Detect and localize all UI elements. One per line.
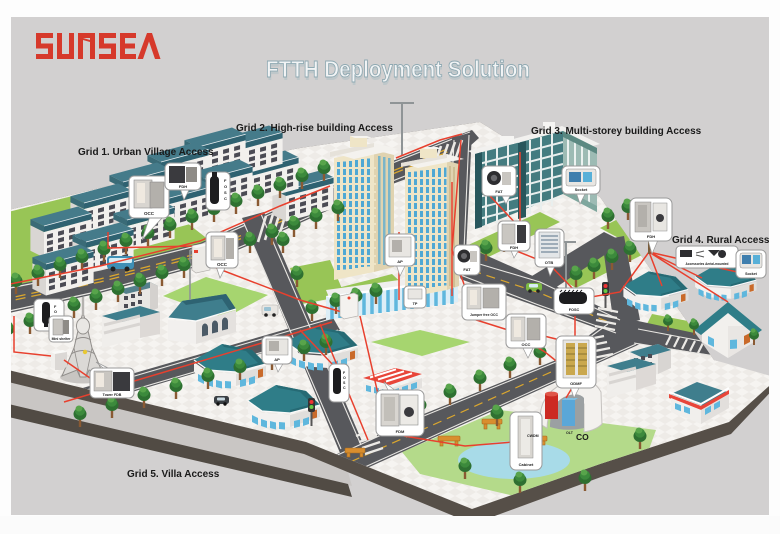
svg-text:Socket: Socket: [575, 188, 588, 192]
svg-text:FOSC: FOSC: [569, 308, 580, 312]
svg-text:FAT: FAT: [495, 189, 503, 194]
svg-text:FTTH Deployment Solution: FTTH Deployment Solution: [266, 56, 530, 82]
svg-text:OTB: OTB: [545, 260, 554, 265]
svg-text:Grid 4. Rural Access: Grid 4. Rural Access: [672, 235, 770, 246]
svg-text:FAT: FAT: [463, 267, 471, 272]
svg-text:Grid 3. Multi-storey building: Grid 3. Multi-storey building Access: [531, 126, 702, 137]
svg-text:Accessories Aerial-mounted: Accessories Aerial-mounted: [686, 262, 729, 266]
svg-text:S: S: [224, 190, 227, 195]
svg-text:CWDM: CWDM: [527, 434, 539, 438]
svg-text:C: C: [224, 196, 227, 201]
svg-text:C: C: [343, 386, 346, 390]
svg-text:FDH: FDH: [647, 234, 655, 239]
svg-text:OCC: OCC: [144, 211, 155, 216]
svg-text:FDH: FDH: [510, 245, 518, 250]
svg-text:OCC: OCC: [522, 342, 531, 347]
svg-text:Grid 2. High-rise building Acc: Grid 2. High-rise building Access: [236, 123, 393, 134]
svg-text:Socket: Socket: [745, 272, 758, 276]
svg-text:AP: AP: [274, 357, 280, 362]
svg-text:AP: AP: [397, 259, 403, 264]
svg-text:TP: TP: [413, 302, 418, 306]
svg-text:O: O: [343, 376, 346, 380]
svg-text:OLT: OLT: [566, 431, 574, 435]
svg-text:FDM: FDM: [396, 429, 405, 434]
svg-text:Jumper free OCC: Jumper free OCC: [470, 313, 498, 317]
svg-text:Mini shelter: Mini shelter: [52, 337, 72, 341]
svg-text:O: O: [54, 310, 57, 314]
svg-text:Cabinet: Cabinet: [519, 462, 534, 467]
svg-text:Grid 5. Villa Access: Grid 5. Villa Access: [127, 469, 220, 480]
svg-text:Tower FDB: Tower FDB: [103, 393, 122, 397]
svg-text:Grid 1. Urban Village Access: Grid 1. Urban Village Access: [78, 147, 214, 158]
svg-text:CO: CO: [576, 432, 589, 442]
svg-text:FDH: FDH: [179, 184, 187, 189]
svg-text:O: O: [224, 184, 227, 189]
svg-text:ODMF: ODMF: [570, 381, 582, 386]
svg-text:OCC: OCC: [217, 262, 228, 267]
